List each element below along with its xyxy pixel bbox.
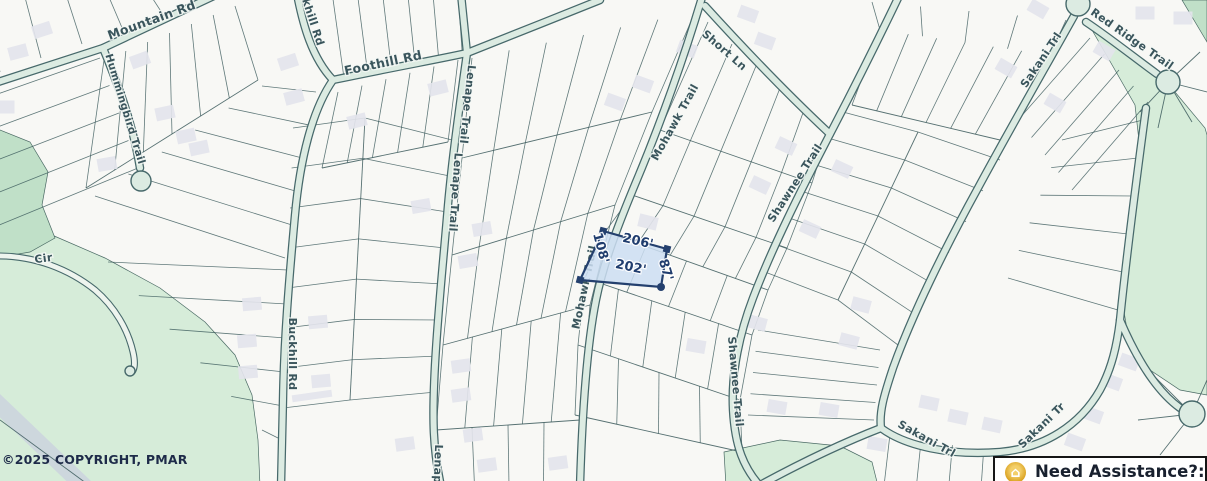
parcel-corner-handle-br[interactable] (657, 283, 665, 291)
culdesac-cir (125, 366, 135, 376)
street-label-cir: Cir (34, 251, 54, 266)
copyright-notice: ©2025 COPYRIGHT, PMAR (2, 452, 188, 467)
map-viewport: Mountain Rd Hummingbird Trail Foothill R… (0, 0, 1207, 481)
map-canvas[interactable]: Mountain Rd Hummingbird Trail Foothill R… (0, 0, 1207, 481)
street-label-buckhill-rd: Buckhill Rd (286, 318, 299, 391)
street-label-lenape-trl-bottom: Lenape Trl (430, 444, 445, 481)
culdesac-hummingbird (131, 171, 151, 191)
culdesac-bottom-right (1179, 401, 1205, 427)
need-assistance-widget[interactable]: ⌂ Need Assistance?: (993, 456, 1207, 481)
assist-label: Need Assistance?: (1035, 462, 1205, 481)
assist-house-icon: ⌂ (1005, 462, 1026, 481)
culdesac-red-ridge (1156, 70, 1180, 94)
